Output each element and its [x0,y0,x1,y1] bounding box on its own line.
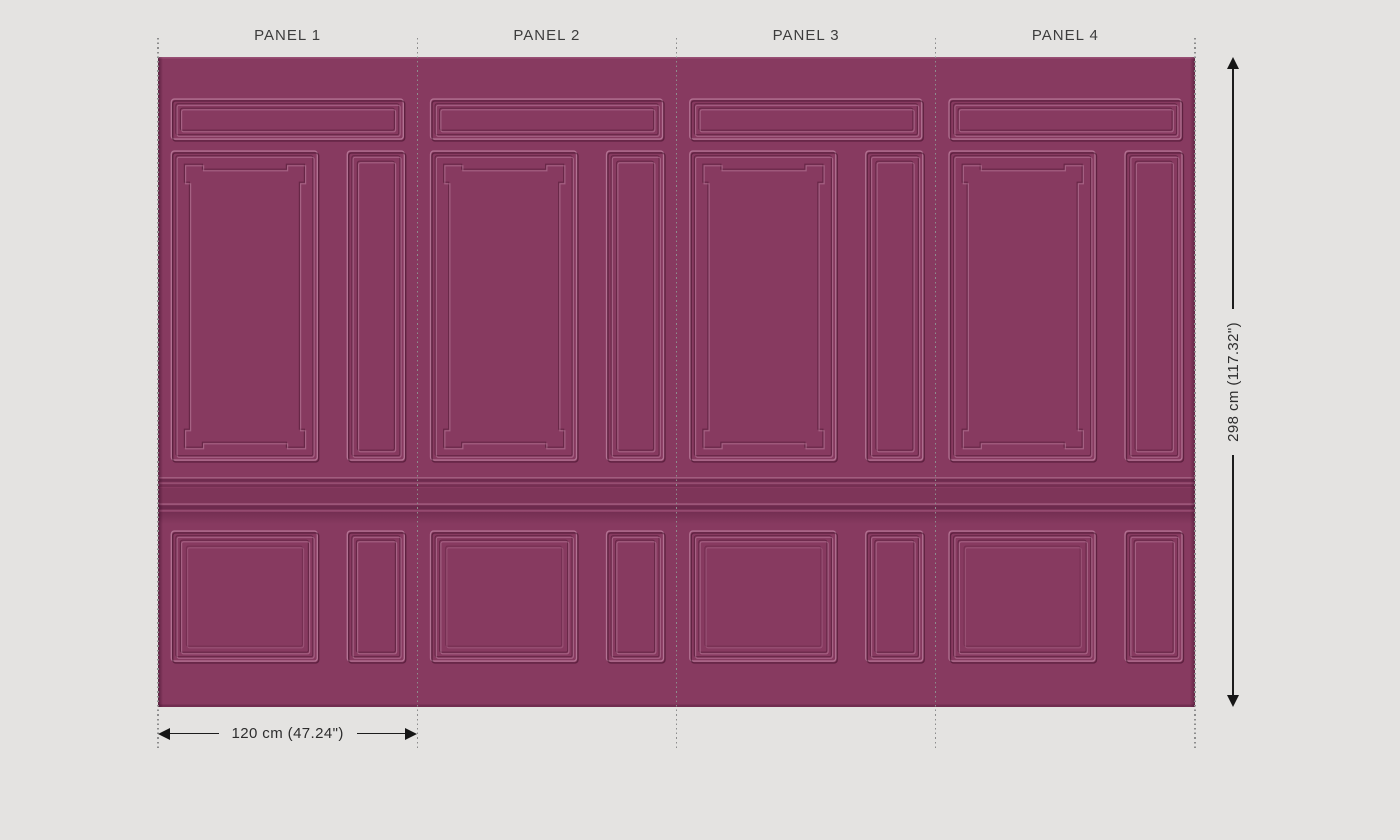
panel-separator [935,38,936,748]
width-dimension: 120 cm (47.24") [158,724,417,743]
arrow-up-icon [1227,57,1239,69]
panel-separator [417,38,418,748]
panel-separator [157,38,158,748]
width-dimension-label: 120 cm (47.24") [219,724,357,743]
panel-separator [676,38,677,748]
panel-3-label: PANEL 3 [677,27,936,45]
dimension-line [1232,455,1234,695]
dimension-line [170,733,219,735]
arrow-right-icon [405,728,417,740]
wallpaper-panel-diagram: PANEL 1 PANEL 2 PANEL 3 PANEL 4 [0,0,1400,840]
height-dimension-label: 298 cm (117.32") [1224,309,1243,455]
panel-separator [1194,38,1195,748]
panel-4-label: PANEL 4 [936,27,1195,45]
dimension-line [1232,69,1234,309]
arrow-left-icon [158,728,170,740]
arrow-down-icon [1227,695,1239,707]
dimension-line [357,733,406,735]
panel-1-label: PANEL 1 [158,27,417,45]
height-dimension: 298 cm (117.32") [1224,57,1242,707]
panel-2-label: PANEL 2 [417,27,676,45]
